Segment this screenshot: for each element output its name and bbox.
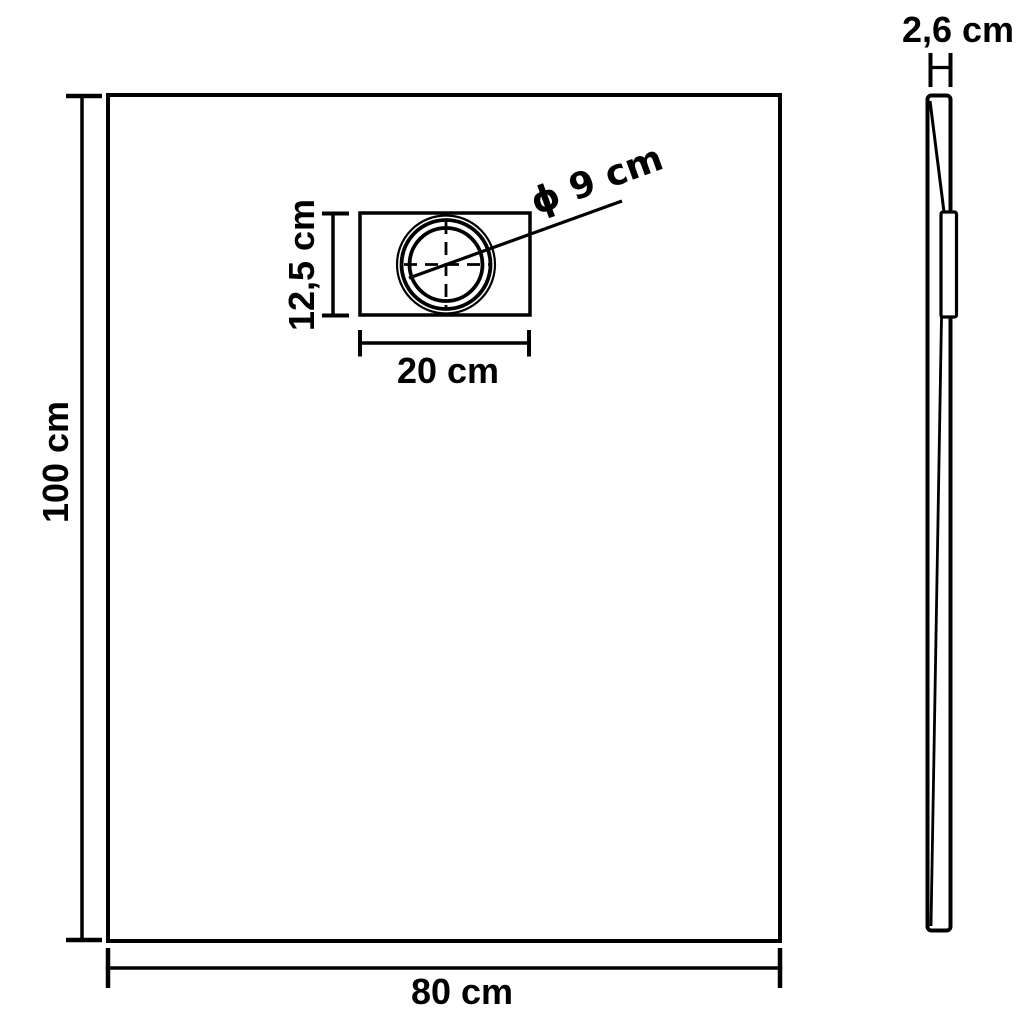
dimension-drawing: 100 cm 80 cm 12,5 cm 20 cm ϕ 9 cm 2,6 cm (0, 0, 1024, 1024)
drain-width-label: 20 cm (397, 353, 499, 389)
side-view (928, 96, 957, 931)
side-thickness-label: 2,6 cm (902, 12, 1014, 48)
front-height-label: 100 cm (38, 401, 74, 523)
front-width-label: 80 cm (411, 974, 513, 1010)
side-drain-bump (941, 212, 957, 317)
drain-height-label: 12,5 cm (284, 199, 320, 331)
drawing-linework (0, 0, 1024, 1024)
dimension-2-6cm (931, 53, 951, 87)
